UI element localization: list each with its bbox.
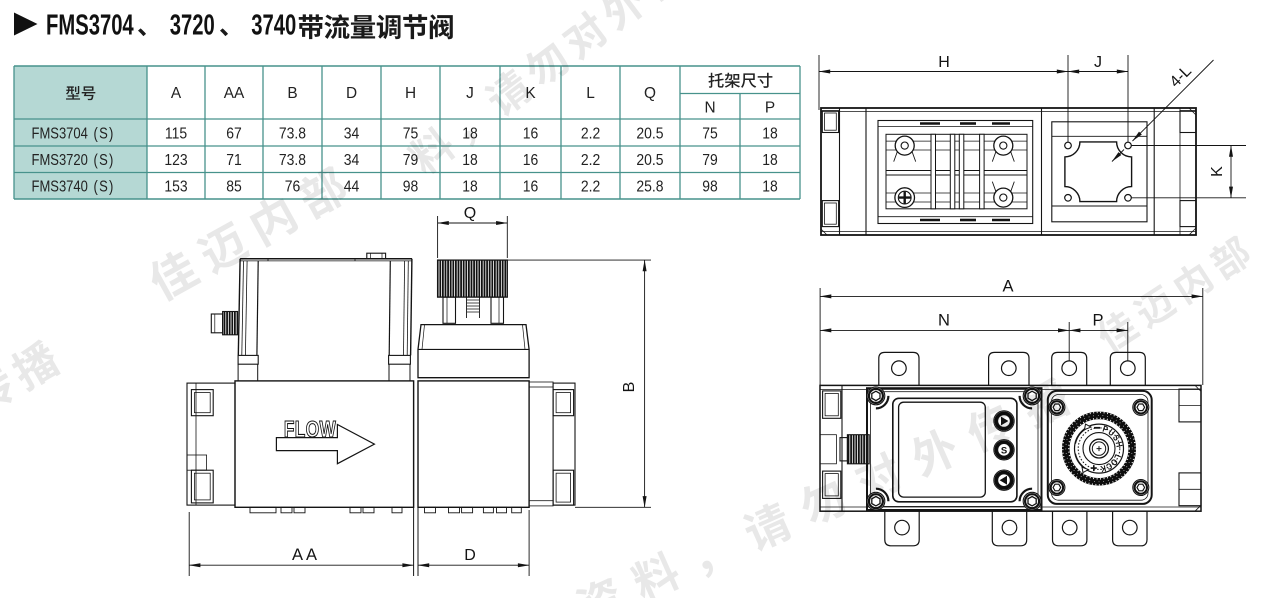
svg-text:A: A: [1002, 278, 1013, 296]
svg-text:FMS3704: FMS3704: [46, 10, 134, 41]
svg-text:20.5: 20.5: [636, 126, 663, 143]
svg-text:FMS3740: FMS3740: [32, 179, 88, 196]
svg-text:P: P: [765, 99, 775, 116]
svg-text:D: D: [346, 85, 357, 102]
svg-text:85: 85: [226, 179, 242, 196]
svg-text:71: 71: [226, 152, 242, 169]
svg-text:44: 44: [344, 179, 360, 196]
svg-text:20.5: 20.5: [636, 152, 663, 169]
svg-text:B: B: [287, 85, 297, 102]
svg-text:25.8: 25.8: [636, 179, 663, 196]
svg-text:N: N: [704, 99, 715, 116]
svg-text:K: K: [1209, 166, 1226, 177]
svg-text:153: 153: [164, 179, 187, 196]
svg-text:16: 16: [523, 152, 539, 169]
svg-text:16: 16: [523, 126, 539, 143]
svg-text:L: L: [586, 85, 595, 102]
svg-text:H: H: [938, 54, 950, 71]
svg-text:S: S: [1001, 445, 1007, 456]
svg-text:73.8: 73.8: [279, 126, 306, 143]
svg-text:(S): (S): [94, 179, 115, 196]
svg-text:18: 18: [762, 179, 778, 196]
svg-text:N: N: [938, 312, 950, 330]
svg-text:18: 18: [462, 179, 478, 196]
svg-text:115: 115: [165, 126, 187, 143]
svg-text:Q: Q: [644, 85, 656, 102]
svg-text:2.2: 2.2: [581, 179, 600, 196]
svg-text:J: J: [1094, 54, 1102, 71]
svg-text:J: J: [466, 85, 474, 102]
svg-text:Q: Q: [464, 205, 476, 222]
svg-text:FMS3704: FMS3704: [32, 125, 88, 142]
svg-text:D: D: [464, 547, 476, 564]
svg-text:H: H: [405, 85, 416, 102]
svg-text:98: 98: [403, 179, 419, 196]
svg-text:AA: AA: [292, 546, 320, 564]
svg-text:73.8: 73.8: [279, 152, 306, 169]
svg-text:(S): (S): [94, 152, 115, 169]
svg-text:16: 16: [523, 179, 539, 196]
svg-text:2.2: 2.2: [581, 126, 600, 143]
svg-text:18: 18: [462, 152, 478, 169]
svg-text:34: 34: [344, 126, 360, 143]
svg-text:123: 123: [164, 152, 187, 169]
svg-text:75: 75: [403, 126, 419, 143]
svg-text:18: 18: [762, 126, 778, 143]
svg-text:A: A: [171, 85, 182, 102]
svg-text:B: B: [621, 382, 638, 393]
svg-text:FMS3720: FMS3720: [32, 152, 88, 169]
svg-text:(S): (S): [94, 125, 115, 142]
svg-text:67: 67: [226, 126, 242, 143]
svg-text:3720: 3720: [170, 10, 215, 41]
svg-text:79: 79: [702, 152, 718, 169]
svg-text:98: 98: [702, 179, 718, 196]
svg-text:34: 34: [344, 152, 360, 169]
svg-text:2.2: 2.2: [581, 152, 600, 169]
svg-text:75: 75: [702, 126, 718, 143]
svg-text:18: 18: [762, 152, 778, 169]
svg-text:AA: AA: [224, 85, 245, 102]
svg-text:3740: 3740: [251, 10, 296, 41]
